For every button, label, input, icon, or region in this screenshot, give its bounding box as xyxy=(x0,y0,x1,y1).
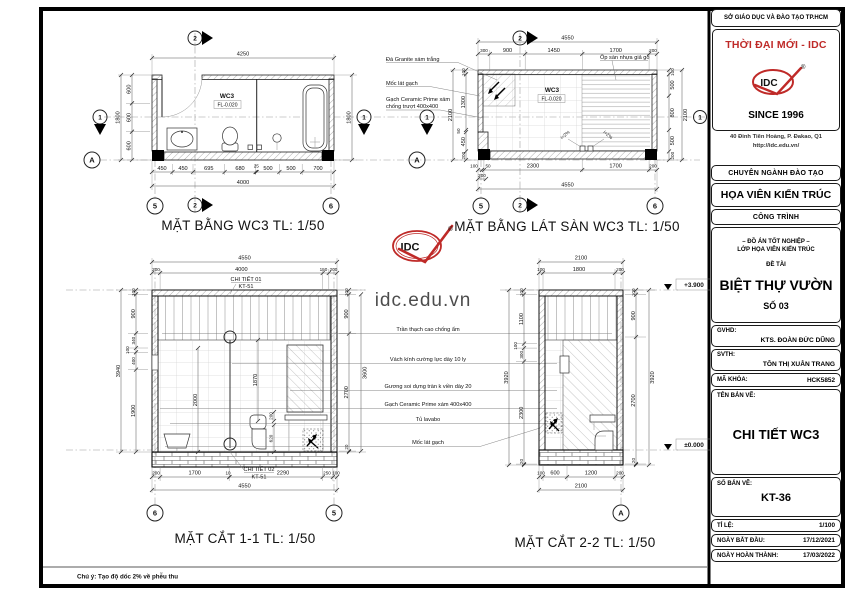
svg-text:3600: 3600 xyxy=(362,367,368,379)
svg-text:100: 100 xyxy=(470,164,478,169)
student-name: TÔN THỊ XUÂN TRANG xyxy=(717,361,835,368)
tiling-dim-left: 100 1300 50 450 200 2100 xyxy=(448,68,478,162)
shower-head xyxy=(273,134,281,150)
drawing-name-box: TÊN BẢN VẼ: CHI TIẾT WC3 xyxy=(711,389,841,475)
svg-text:3920: 3920 xyxy=(650,371,656,383)
svg-text:2: 2 xyxy=(193,203,197,210)
svg-text:200: 200 xyxy=(269,412,274,420)
floor-slab xyxy=(152,452,337,467)
grid-bubble-2-top: 2 xyxy=(188,31,213,45)
s11-dim-left: 100 900 340 100 400 1900 3940 xyxy=(116,288,152,454)
toilet xyxy=(595,431,613,450)
brand-name: THỜI ĐẠI MỚI - IDC xyxy=(725,39,826,51)
tiling-dim-top: 4550 300 900 1450 1700 200 xyxy=(476,36,659,70)
svg-text:10: 10 xyxy=(225,471,231,476)
svg-text:200: 200 xyxy=(330,267,338,272)
finish-date-row: NGÀY HOÀN THÀNH: 17/03/2022 xyxy=(711,549,841,562)
svg-text:1300: 1300 xyxy=(461,96,467,108)
svg-text:2: 2 xyxy=(518,36,522,43)
svg-text:Đá Granite xám trắng: Đá Granite xám trắng xyxy=(386,56,439,63)
stamp-reg-mark: ® xyxy=(448,225,453,233)
svg-text:150: 150 xyxy=(320,267,328,272)
section-1-1: 4550 200 4000 150 200 CHI TIẾT 01 KT-51 … xyxy=(116,256,369,546)
svg-text:chống trượt 400x400: chống trượt 400x400 xyxy=(386,104,438,110)
plan-dim-bottom: 450 450 695 680 25 500 500 700 4000 xyxy=(150,161,336,190)
wall-vent xyxy=(152,355,158,370)
svg-text:100: 100 xyxy=(513,342,518,350)
svg-text:620: 620 xyxy=(269,434,274,442)
svg-text:4550: 4550 xyxy=(238,484,250,490)
grid-bubble-5: 5 xyxy=(473,198,489,214)
topic-label: ĐỀ TÀI xyxy=(766,262,786,268)
wall-cabinet xyxy=(560,356,569,373)
svg-text:4550: 4550 xyxy=(561,183,573,189)
room-label: WC3 xyxy=(545,87,560,94)
svg-text:+3.900: +3.900 xyxy=(684,282,704,289)
svg-text:25: 25 xyxy=(254,164,260,169)
s22-dim-top: 2100 100 1800 200 xyxy=(537,256,625,290)
svg-text:1: 1 xyxy=(98,115,102,122)
svg-text:6: 6 xyxy=(153,509,157,518)
svg-text:2100: 2100 xyxy=(575,484,587,490)
svg-text:1800: 1800 xyxy=(116,111,122,123)
svg-text:1: 1 xyxy=(425,115,429,122)
scale-row: TỈ LỆ: 1/100 xyxy=(711,519,841,532)
watermark: idc.edu.vn xyxy=(375,290,472,311)
s22-dim-right: 100 900 2700 20 3920 xyxy=(623,288,656,467)
ceiling-hatch xyxy=(545,296,617,340)
grid-bubble-2-bottom: 2 xyxy=(513,198,538,212)
grid-bubble-6: 6 xyxy=(323,198,339,214)
elevation-marker-top: +3.900 xyxy=(664,279,712,290)
svg-text:700: 700 xyxy=(313,166,322,172)
svg-text:1900: 1900 xyxy=(131,405,137,417)
mirror xyxy=(287,345,323,412)
svg-text:6: 6 xyxy=(329,202,333,211)
svg-text:200: 200 xyxy=(461,151,466,159)
grid-bubble-2-bottom: 2 xyxy=(188,198,213,212)
section11-title: MẶT CẮT 1-1 TL: 1/50 xyxy=(174,531,315,546)
svg-text:4550: 4550 xyxy=(561,36,573,42)
svg-text:Mốc lát gạch: Mốc lát gạch xyxy=(386,81,418,87)
plan-dim-right: 1800 xyxy=(334,73,357,162)
svg-text:600: 600 xyxy=(127,113,133,122)
svg-text:6: 6 xyxy=(653,202,657,211)
svg-text:1100: 1100 xyxy=(519,313,525,325)
svg-text:4550: 4550 xyxy=(238,256,250,262)
tiling-dim-right: 100 500 800 500 200 2100 xyxy=(657,68,689,162)
idc-stamp: IDC ® xyxy=(393,225,453,262)
svg-text:450: 450 xyxy=(157,166,166,172)
drawing-name: CHI TIẾT WC3 xyxy=(717,427,835,442)
column-block xyxy=(152,150,164,161)
section22-title: MẶT CẮT 2-2 TL: 1/50 xyxy=(514,535,655,550)
grid-bubble-5: 5 xyxy=(326,505,342,521)
svg-text:Tủ lavabo: Tủ lavabo xyxy=(416,416,441,423)
svg-text:20: 20 xyxy=(631,458,636,464)
svg-text:2300: 2300 xyxy=(519,407,525,419)
svg-text:1870: 1870 xyxy=(253,374,259,386)
svg-text:Ốp sàn nhựa giả gỗ: Ốp sàn nhựa giả gỗ xyxy=(600,54,649,61)
s22-dim-bottom: 100 600 1200 200 2100 xyxy=(537,465,625,493)
svg-text:1450: 1450 xyxy=(547,48,559,54)
start-date: 17/12/2021 xyxy=(803,537,835,544)
svg-text:600: 600 xyxy=(550,471,559,477)
student-code: HCK5852 xyxy=(807,377,835,384)
tiling-plan-wc3: i=2% i=2% WC3 FL-0.020 Đá Granite xám tr… xyxy=(386,31,707,234)
code-row: MÃ KHÓA: HCK5852 xyxy=(711,373,841,387)
svg-text:3920: 3920 xyxy=(504,371,510,383)
grid-bubble-1-left: 1 xyxy=(420,110,434,135)
svg-text:900: 900 xyxy=(131,309,137,318)
svg-text:200: 200 xyxy=(152,267,160,272)
tiling-title: MẶT BẰNG LÁT SÀN WC3 TL: 1/50 xyxy=(454,219,680,234)
svg-text:200: 200 xyxy=(649,48,657,53)
svg-text:1700: 1700 xyxy=(609,164,621,170)
svg-text:100: 100 xyxy=(519,288,524,296)
plan-dim-top: 4250 xyxy=(150,52,336,76)
advisor-name: KTS. ĐOÀN ĐỨC DŨNG xyxy=(717,337,835,344)
svg-text:2700: 2700 xyxy=(344,386,350,398)
sink-cabinet xyxy=(167,128,197,150)
svg-text:900: 900 xyxy=(344,309,350,318)
svg-text:1800: 1800 xyxy=(573,267,585,273)
svg-text:600: 600 xyxy=(126,85,132,94)
svg-text:Gạch Ceramic Prime xám: Gạch Ceramic Prime xám xyxy=(386,97,450,103)
grid-bubble-1-left: 1 xyxy=(93,110,107,135)
svg-text:Trần thạch cao chống ẩm: Trần thạch cao chống ẩm xyxy=(396,326,460,333)
svg-text:500: 500 xyxy=(670,80,676,89)
drain-detail xyxy=(303,429,323,451)
svg-text:®: ® xyxy=(801,64,806,71)
dept-header: CHUYÊN NGÀNH ĐÀO TẠO xyxy=(711,165,841,181)
granite-shower-corner xyxy=(483,74,515,106)
svg-text:2: 2 xyxy=(193,36,197,43)
svg-text:600: 600 xyxy=(127,141,133,150)
bathtub xyxy=(303,85,327,151)
svg-text:300: 300 xyxy=(480,48,488,53)
svg-text:100: 100 xyxy=(332,471,340,476)
grid-bubble-6: 6 xyxy=(647,198,663,214)
gvhd-row: GVHD: KTS. ĐOÀN ĐỨC DŨNG xyxy=(711,325,841,347)
svg-text:100: 100 xyxy=(670,68,675,76)
svg-text:Vách kính cường lực dày 10 ly: Vách kính cường lực dày 10 ly xyxy=(390,357,466,363)
project-line1: – ĐỒ ÁN TỐT NGHIỆP – xyxy=(742,239,810,245)
svg-text:200: 200 xyxy=(616,471,624,476)
svg-text:340: 340 xyxy=(131,336,136,344)
plan-title: MẶT BẰNG WC3 TL: 1/50 xyxy=(161,218,324,233)
finish-date: 17/03/2022 xyxy=(803,552,835,559)
svg-text:200: 200 xyxy=(616,267,624,272)
svg-text:2000: 2000 xyxy=(193,394,199,406)
svg-text:4000: 4000 xyxy=(235,267,247,273)
svg-text:5: 5 xyxy=(332,509,336,518)
svg-text:2290: 2290 xyxy=(277,471,289,477)
sheet-no-box: SỐ BẢN VẼ: KT-36 xyxy=(711,477,841,517)
grid-bubble-2-top: 2 xyxy=(513,31,538,45)
idc-logo: IDC ® xyxy=(739,61,813,101)
grid-bubble-a: A xyxy=(613,505,629,521)
architectural-sheet: WC3 FL-0.020 4250 600 600 600 1800 1800 … xyxy=(0,0,850,602)
svg-text:5: 5 xyxy=(479,202,483,211)
project-line2: LỚP HỌA VIÊN KIẾN TRÚC xyxy=(737,247,814,253)
svg-text:1700: 1700 xyxy=(188,471,200,477)
svg-text:A: A xyxy=(618,509,624,518)
svg-text:1: 1 xyxy=(698,115,702,122)
svg-text:2100: 2100 xyxy=(683,109,689,121)
scale-value: 1/100 xyxy=(819,522,835,529)
section-2-2: 2100 100 1800 200 100 1100 100 300 2300 … xyxy=(504,256,712,550)
svg-text:500: 500 xyxy=(263,166,272,172)
svg-text:2700: 2700 xyxy=(631,394,637,406)
svg-text:450: 450 xyxy=(178,166,187,172)
tiling-dim-bottom: 100 50 2300 1700 200 200 4550 xyxy=(470,160,659,192)
grid-bubble-5: 5 xyxy=(147,198,163,214)
title-block: SỞ GIÁO DỤC VÀ ĐÀO TẠO TP.HCM THỜI ĐẠI M… xyxy=(711,9,841,587)
address-block: 40 Đinh Tiên Hoàng, P. Đakao, Q1 http://… xyxy=(711,133,841,163)
door-swing xyxy=(162,77,202,117)
svg-text:200: 200 xyxy=(152,471,160,476)
svg-text:100: 100 xyxy=(537,267,545,272)
svg-text:500: 500 xyxy=(670,136,676,145)
svg-text:Gương soi dựng tràn k viền dày: Gương soi dựng tràn k viền dày 20 xyxy=(384,384,471,390)
grid-bubble-1-right: 1 xyxy=(357,110,371,135)
svg-text:1800: 1800 xyxy=(347,111,353,123)
svg-text:±0.000: ±0.000 xyxy=(684,442,704,449)
svg-text:100: 100 xyxy=(631,288,636,296)
svg-text:250: 250 xyxy=(323,471,331,476)
svg-text:2100: 2100 xyxy=(575,256,587,262)
logo-box: THỜI ĐẠI MỚI - IDC IDC ® SINCE 1996 xyxy=(712,29,840,131)
svg-text:CHI TIẾT 02: CHI TIẾT 02 xyxy=(244,466,275,473)
svg-text:1: 1 xyxy=(362,115,366,122)
floor-slab xyxy=(539,450,623,465)
svg-text:100: 100 xyxy=(125,346,130,354)
svg-text:300: 300 xyxy=(519,351,524,359)
svg-text:695: 695 xyxy=(204,166,213,172)
svth-row: SVTH: TÔN THỊ XUÂN TRANG xyxy=(711,349,841,371)
svg-text:3940: 3940 xyxy=(116,365,122,377)
room-level: FL-0.020 xyxy=(541,97,561,103)
sheet-number: KT-36 xyxy=(717,492,835,504)
floor-drains xyxy=(248,145,262,150)
address-line: 40 Đinh Tiên Hoàng, P. Đakao, Q1 xyxy=(711,133,841,142)
svg-text:800: 800 xyxy=(670,108,676,117)
svg-text:100: 100 xyxy=(537,471,545,476)
svg-text:1200: 1200 xyxy=(585,471,597,477)
plan-dim-left: 600 600 600 1800 xyxy=(116,73,153,162)
authority-header: SỞ GIÁO DỤC VÀ ĐÀO TẠO TP.HCM xyxy=(711,9,841,27)
dept-name: HỌA VIÊN KIẾN TRÚC xyxy=(711,183,841,207)
svg-text:20: 20 xyxy=(519,459,524,465)
svg-text:2300: 2300 xyxy=(527,164,539,170)
svg-text:2: 2 xyxy=(518,203,522,210)
topic-name: BIỆT THỰ VƯỜN xyxy=(720,277,833,293)
svg-text:400: 400 xyxy=(131,357,136,365)
svg-text:500: 500 xyxy=(286,166,295,172)
grid-bubble-6: 6 xyxy=(147,505,163,521)
svg-text:CHI TIẾT 01: CHI TIẾT 01 xyxy=(231,276,262,283)
svg-text:100: 100 xyxy=(344,288,349,296)
svg-text:1700: 1700 xyxy=(609,48,621,54)
room-level: FL-0.020 xyxy=(217,103,237,109)
svg-text:200: 200 xyxy=(670,151,675,159)
s11-dim-right: 100 900 2700 20 3600 xyxy=(337,288,368,454)
svg-text:900: 900 xyxy=(503,48,512,54)
svg-text:20: 20 xyxy=(344,444,349,450)
svg-text:680: 680 xyxy=(235,166,244,172)
svg-text:450: 450 xyxy=(461,137,467,146)
svg-text:100: 100 xyxy=(131,288,136,296)
svg-text:200: 200 xyxy=(478,173,486,178)
column-block xyxy=(322,150,334,161)
svg-text:KT-51: KT-51 xyxy=(239,284,254,290)
footer-note: Chú ý: Tạo độ dốc 2% về phễu thu xyxy=(77,574,178,581)
svg-text:200: 200 xyxy=(649,164,657,169)
svg-text:A: A xyxy=(89,156,95,165)
grid-bubble-a: A xyxy=(84,152,100,168)
elevation-marker-bottom: ±0.000 xyxy=(664,439,712,450)
svg-text:900: 900 xyxy=(631,311,637,320)
svg-text:A: A xyxy=(414,156,420,165)
drain-detail xyxy=(546,413,562,433)
svg-text:100: 100 xyxy=(461,68,466,76)
project-header: CÔNG TRÌNH xyxy=(711,209,841,225)
start-date-row: NGÀY BẮT ĐẦU: 17/12/2021 xyxy=(711,534,841,547)
svg-text:5: 5 xyxy=(153,202,157,211)
svg-text:2100: 2100 xyxy=(448,109,454,121)
svg-text:Gạch Ceramic Prime xám 400x400: Gạch Ceramic Prime xám 400x400 xyxy=(384,402,471,408)
svg-text:Mốc lát gạch: Mốc lát gạch xyxy=(412,440,444,446)
room-label: WC3 xyxy=(220,93,235,100)
website-link[interactable]: http://idc.edu.vn/ xyxy=(711,142,841,151)
s22-dim-left: 100 1100 100 300 2300 20 3920 xyxy=(504,288,539,467)
project-box: – ĐỒ ÁN TỐT NGHIỆP – LỚP HỌA VIÊN KIẾN T… xyxy=(711,227,841,323)
svg-text:KT-51: KT-51 xyxy=(252,475,267,481)
floor-plan-wc3: WC3 FL-0.020 4250 600 600 600 1800 1800 … xyxy=(84,31,371,233)
since-label: SINCE 1996 xyxy=(748,110,804,121)
topic-number: SỐ 03 xyxy=(763,301,789,311)
toilet xyxy=(222,127,238,151)
svg-text:4250: 4250 xyxy=(237,52,249,58)
svg-text:4000: 4000 xyxy=(237,180,249,186)
svg-text:50: 50 xyxy=(485,164,491,169)
svg-text:50: 50 xyxy=(456,128,461,134)
